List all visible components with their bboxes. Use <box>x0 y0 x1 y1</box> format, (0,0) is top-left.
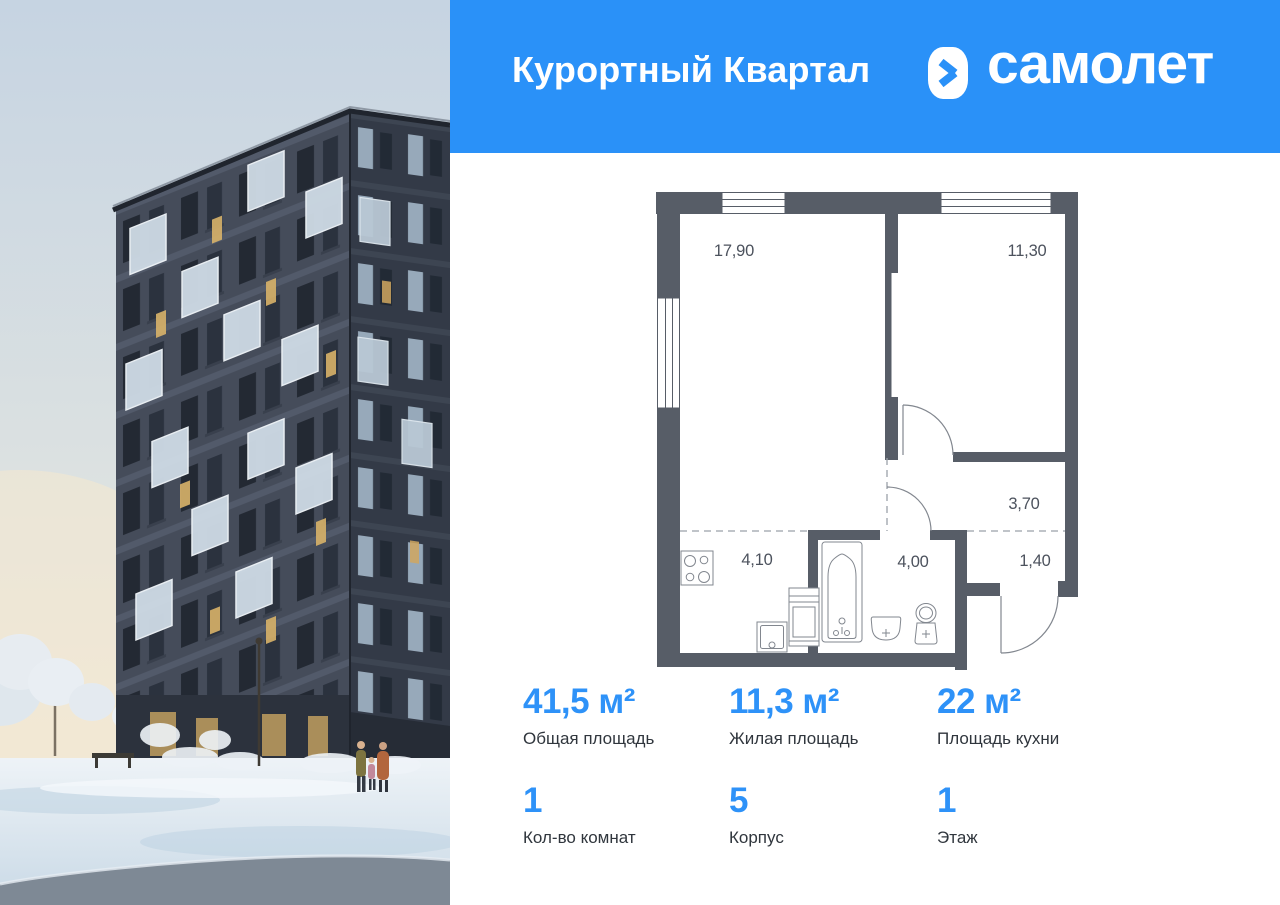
stat-value: 11,3 м² <box>729 684 858 719</box>
building-photo <box>0 0 450 905</box>
zone-dividers <box>680 458 1065 531</box>
windows <box>658 193 1052 409</box>
stat-rooms-count: 1 Кол-во комнат <box>523 783 636 846</box>
room-area-entry: 1,40 <box>1019 552 1050 570</box>
room-area-living: 17,90 <box>714 242 754 260</box>
window-icon-top-left <box>722 193 785 214</box>
room-area-kitchen: 4,10 <box>741 551 772 569</box>
window-icon-top-right <box>941 193 1051 214</box>
stat-label: Кол-во комнат <box>523 829 636 846</box>
stat-kitchen-area: 22 м² Площадь кухни <box>937 684 1059 747</box>
building-right-facade <box>350 96 450 810</box>
walls <box>656 192 1078 670</box>
room-area-bedroom: 11,30 <box>1007 242 1046 260</box>
stat-value: 1 <box>937 783 978 818</box>
stat-label: Жилая площадь <box>729 730 858 747</box>
door-icon-hallway <box>887 487 931 531</box>
apartment-listing-card: Курортный Квартал самолет <box>0 0 1280 905</box>
room-area-labels: 17,90 11,30 3,70 1,40 4,10 4,00 <box>714 242 1051 571</box>
stat-value: 22 м² <box>937 684 1059 719</box>
samolet-logo-icon <box>928 47 968 99</box>
room-area-hallway: 3,70 <box>1008 495 1039 513</box>
toilet-icon <box>915 604 937 645</box>
stat-value: 5 <box>729 783 784 818</box>
door-icon-bedroom <box>903 405 953 455</box>
project-title: Курортный Квартал <box>512 52 870 88</box>
samolet-logo-text: самолет <box>987 36 1213 93</box>
window-icon-left <box>658 298 680 408</box>
stat-label: Этаж <box>937 829 978 846</box>
stat-label: Общая площадь <box>523 730 654 747</box>
door-icon-entrance <box>1001 596 1058 653</box>
stat-label: Корпус <box>729 829 784 846</box>
kitchen-sink-icon <box>757 622 787 652</box>
stat-value: 41,5 м² <box>523 684 654 719</box>
doors <box>887 405 1058 653</box>
bathtub-icon <box>822 542 862 642</box>
stove-icon <box>681 551 713 585</box>
stat-floor-number: 1 Этаж <box>937 783 978 846</box>
header: Курортный Квартал самолет <box>450 0 1280 153</box>
washbasin-icon <box>871 617 900 640</box>
stat-value: 1 <box>523 783 636 818</box>
stat-label: Площадь кухни <box>937 730 1059 747</box>
washing-machine-icon <box>789 588 819 646</box>
stat-total-area: 41,5 м² Общая площадь <box>523 684 654 747</box>
stat-building-number: 5 Корпус <box>729 783 784 846</box>
room-area-bathroom: 4,00 <box>897 553 928 571</box>
floor-plan: 17,90 11,30 3,70 1,40 4,10 4,00 <box>450 160 1280 675</box>
stat-living-area: 11,3 м² Жилая площадь <box>729 684 858 747</box>
